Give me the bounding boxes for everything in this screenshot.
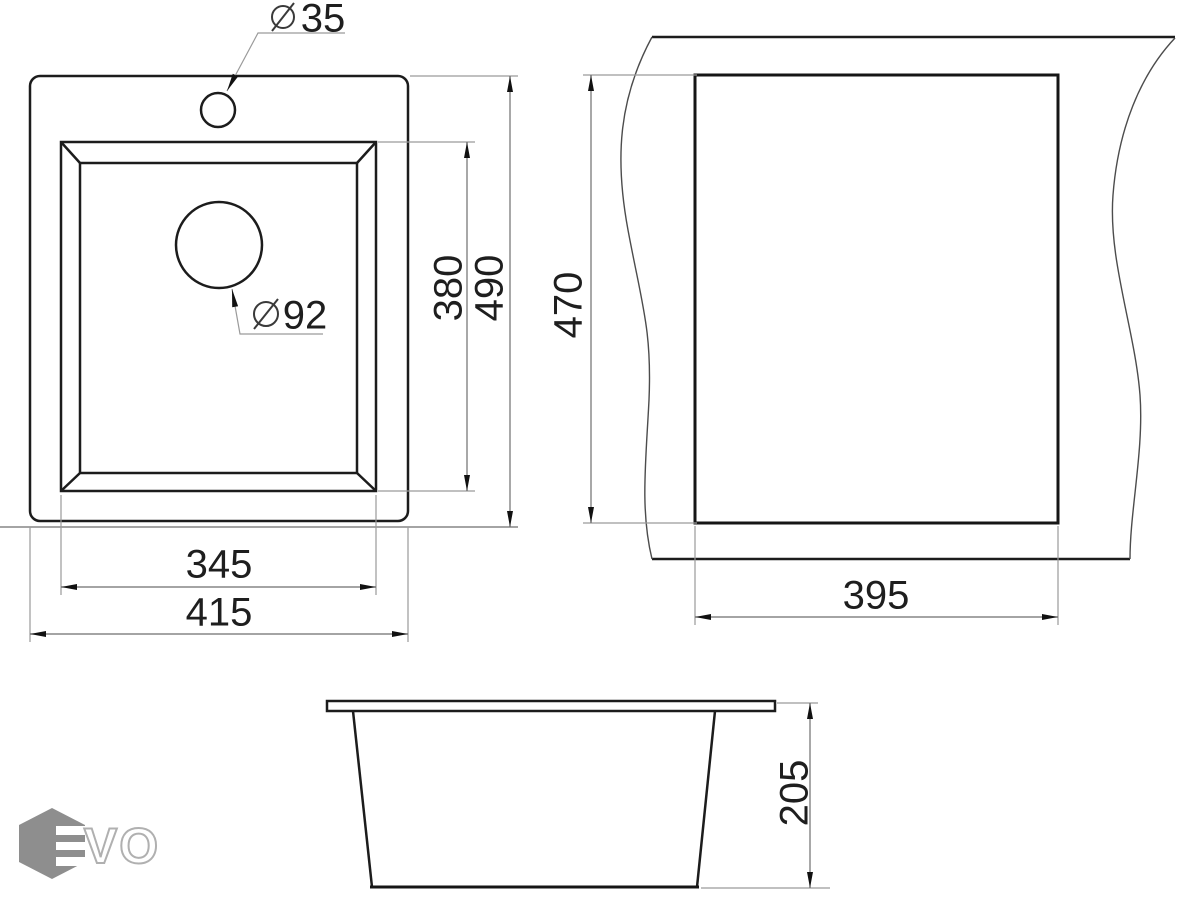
break-line-right [1112,38,1175,559]
bowl-width-label: 345 [186,542,253,586]
side-view: 205 [327,701,830,888]
bowl-chamfer-top-right [357,142,376,163]
plan-view: 35 92 380 490 [0,0,518,642]
arrowhead-up [807,703,813,719]
drain-hole-diameter-label: 92 [283,293,328,337]
arrowhead-down [588,507,594,523]
bowl-side-right [697,711,715,887]
drain-hole [176,202,262,288]
arrowhead-right [392,631,408,637]
hexagon-e-icon [19,808,90,879]
bowl-chamfer-top-left [61,142,80,163]
arrowhead-up [464,142,470,158]
cutout-opening [695,75,1058,523]
diameter-symbol-icon [254,299,278,329]
arrowhead-right [1042,614,1058,620]
cutout-length-label: 470 [546,272,590,339]
faucet-hole-diameter-label: 35 [301,0,346,40]
arrowhead-left [695,614,711,620]
drain-hole-callout: 92 [232,289,327,337]
arrowhead-down [507,511,513,527]
overall-width-label: 415 [186,590,253,634]
diameter-symbol-icon [272,3,294,31]
cutout-view: 470 395 [546,37,1175,625]
arrowhead-up [588,75,594,91]
dimension-395: 395 [695,526,1058,625]
arrowhead-left [61,584,77,590]
arrowhead-left [30,631,46,637]
arrowhead-up [507,76,513,92]
leader-arrowhead [232,289,238,307]
bowl-chamfer-bottom-left [61,473,80,491]
brand-logo: VO [19,808,160,879]
arrowhead-down [807,872,813,888]
bowl-side-left [353,711,372,887]
bowl-rim-outer [61,142,376,491]
break-line-left [621,37,652,559]
faucet-hole [201,93,235,127]
dimension-380: 380 [378,142,475,491]
sink-rim-profile [327,701,775,711]
depth-label: 205 [772,760,816,827]
drawing-canvas: 35 92 380 490 [0,0,1190,900]
dimension-205: 205 [701,703,830,888]
logo-text: VO [84,818,160,874]
arrowhead-right [360,584,376,590]
bowl-length-label: 380 [426,255,470,322]
overall-length-label: 490 [467,255,511,322]
leader-line [227,33,345,91]
dimension-345: 345 [61,495,376,595]
bowl-chamfer-bottom-right [357,473,376,491]
arrowhead-down [464,475,470,491]
technical-drawing: 35 92 380 490 [0,0,1190,900]
cutout-width-label: 395 [843,573,910,617]
faucet-hole-callout: 35 [227,0,345,91]
